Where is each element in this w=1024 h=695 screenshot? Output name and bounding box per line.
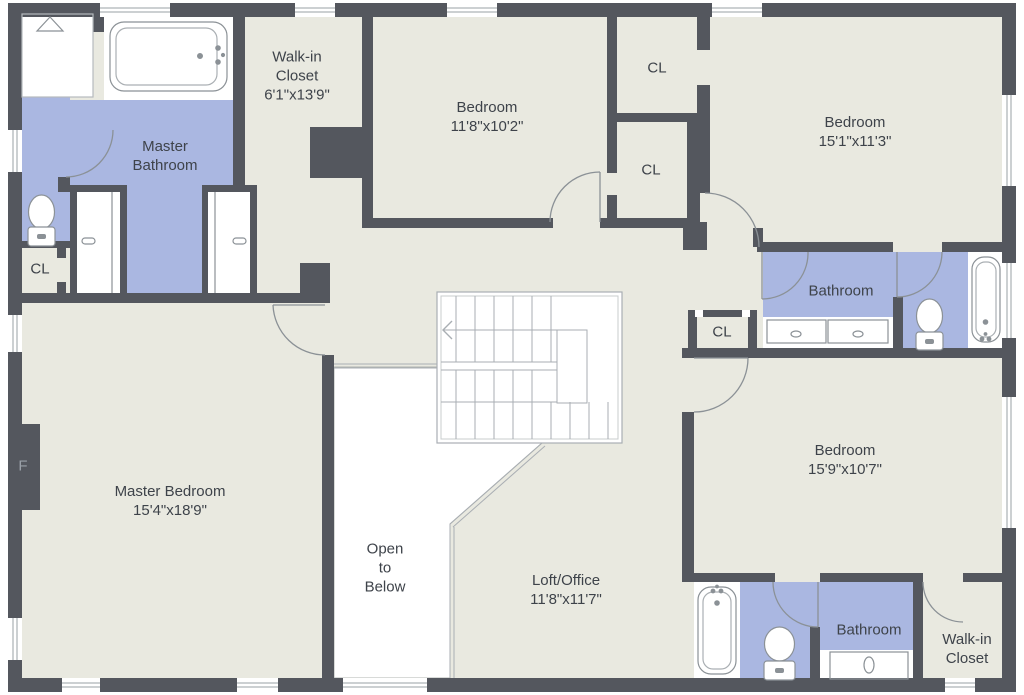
bathtub-bottom-icon [698,585,736,674]
furnace-box [8,424,40,510]
closet-jamb [695,310,703,317]
floor-plan: Walk-in Closet6'1"x13'9" Master Bathroom… [0,0,1024,695]
staircase [437,292,622,443]
toilet-master-icon [28,195,55,246]
toilet-bathroom-top-icon [916,299,943,350]
floor-plan-drawing [0,0,1024,695]
bathtub-master-icon [110,22,227,91]
bathtub-top-icon [972,257,1000,342]
toilet-bottom-icon [764,627,795,680]
vanity-master-right-icon [208,192,250,293]
vanity-master-left-icon [77,192,120,293]
closet-jamb [742,310,750,317]
